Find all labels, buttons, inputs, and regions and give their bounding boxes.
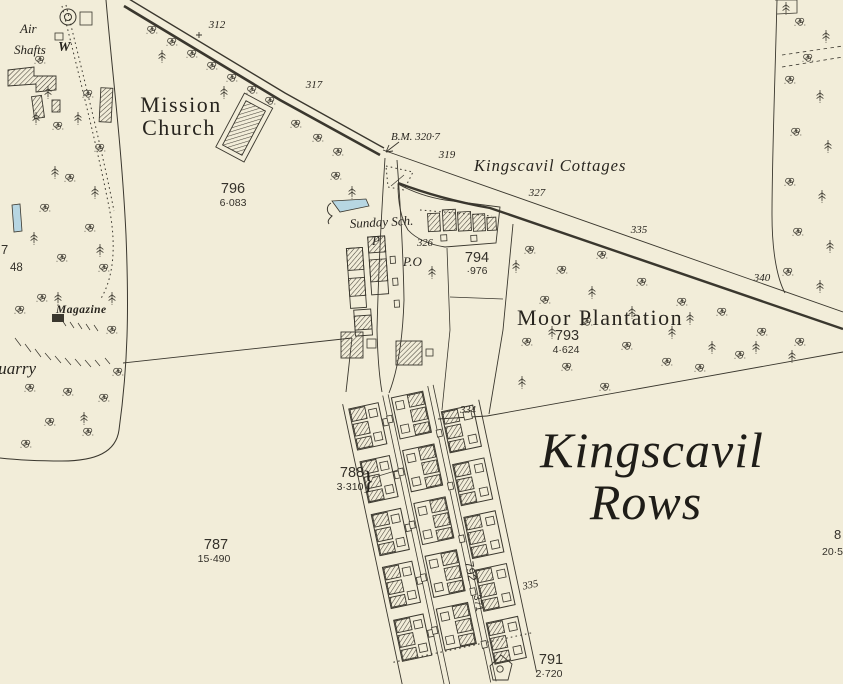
label-parcel-796: 796 — [221, 181, 245, 197]
label-elev-334: 334 — [459, 405, 477, 416]
label-church: Church — [142, 115, 216, 140]
label-edge-parcel-7: 7 — [1, 242, 8, 257]
label-acreage-793: 4·624 — [553, 344, 580, 356]
lane-privy — [387, 415, 393, 423]
terrace-yard-outbuilding — [429, 559, 438, 568]
terrace-houses-hatched — [372, 512, 389, 527]
terrace-yard-outbuilding — [380, 461, 389, 470]
terrace-houses-hatched — [444, 566, 461, 581]
row-block-upper-2 — [396, 341, 422, 365]
label-elev-327: 327 — [528, 187, 546, 199]
terrace-yard-outbuilding — [402, 567, 411, 576]
label-kingscavil-rows-2: Rows — [589, 474, 702, 530]
terrace-yard-outbuilding — [395, 400, 404, 409]
terrace-yard-outbuilding — [434, 582, 443, 591]
terrace-yard-outbuilding — [385, 485, 394, 494]
shaft-outbuilding-2 — [55, 33, 63, 40]
terrace-houses-hatched — [457, 477, 474, 492]
label-kingscavil-rows-1: Kingscavil — [539, 422, 764, 478]
lane-privy — [409, 521, 415, 529]
label-elev-335: 335 — [630, 224, 648, 236]
terrace-west-2-hatched — [354, 315, 372, 330]
label-edge-acreage-20: 20·5 — [822, 546, 843, 558]
terrace-yard-outbuilding — [418, 643, 427, 652]
privy — [393, 278, 398, 285]
lane-privy — [447, 482, 453, 490]
shaft-outbuilding — [80, 12, 92, 25]
terrace-yard-outbuilding — [479, 487, 488, 496]
terrace-houses-hatched — [350, 407, 367, 422]
terrace-houses-hatched — [398, 633, 415, 648]
terrace-houses-hatched — [491, 635, 508, 650]
privy — [394, 300, 399, 307]
label-acreage-796: 6·083 — [220, 197, 247, 209]
label-benchmark: B.M. 320·7 — [391, 131, 440, 143]
terrace-west-hatched — [346, 247, 363, 270]
terrace-houses-hatched — [468, 530, 485, 545]
terrace-west-hatched — [348, 277, 365, 296]
terrace-yard-outbuilding — [407, 590, 416, 599]
cottage — [457, 211, 471, 231]
label-edge-acreage-48: 48 — [10, 262, 23, 274]
terrace-yard-outbuilding — [423, 530, 432, 539]
label-parcel-794: 794 — [465, 250, 489, 266]
terrace-east-hatched — [369, 259, 387, 282]
label-well-w: W — [58, 40, 72, 55]
privy — [390, 256, 395, 263]
cottage — [473, 214, 486, 232]
label-air-shafts-2: Shafts — [14, 42, 46, 57]
label-parcel-787: 787 — [204, 537, 228, 553]
cottage — [442, 209, 456, 231]
terrace-houses-hatched — [443, 409, 460, 424]
terrace-yard-outbuilding — [368, 408, 377, 417]
label-elev-312: 312 — [208, 19, 226, 31]
terrace-houses-hatched — [441, 551, 458, 566]
lane-privy — [420, 574, 426, 582]
terrace-houses-hatched — [455, 618, 472, 633]
terrace-houses-hatched — [353, 421, 370, 436]
label-acreage-794: ·976 — [466, 265, 487, 277]
terrace-houses-hatched — [430, 498, 447, 513]
small-reservoir — [12, 204, 22, 232]
label-elev-340: 340 — [753, 272, 771, 284]
label-acreage-788: 3·310 — [337, 481, 364, 493]
terrace-yard-outbuilding — [400, 424, 409, 433]
terrace-yard-outbuilding — [412, 477, 421, 486]
lane-privy — [481, 641, 487, 649]
terrace-yard-outbuilding — [413, 620, 422, 629]
terrace-houses-hatched — [407, 392, 424, 407]
label-pump-p: P — [371, 233, 380, 248]
row-outbuilding — [426, 349, 433, 356]
terrace-houses-hatched — [376, 527, 393, 542]
terrace-yard-outbuilding — [373, 432, 382, 441]
terrace-houses-hatched — [395, 618, 412, 633]
label-moor-plantation: Moor Plantation — [517, 305, 683, 330]
terrace-houses-hatched — [452, 604, 469, 619]
terrace-yard-outbuilding — [485, 516, 494, 525]
cottage-outbuilding — [441, 235, 447, 241]
label-elev-326: 326 — [416, 238, 434, 249]
terrace-yard-outbuilding — [391, 514, 400, 523]
terrace-yard-outbuilding — [508, 622, 517, 631]
terrace-yard-outbuilding — [468, 434, 477, 443]
label-parcel-788: 788 — [340, 465, 364, 481]
terrace-houses-hatched — [418, 445, 435, 460]
terrace-yard-outbuilding — [502, 593, 511, 602]
row-outbuilding — [367, 339, 376, 348]
terrace-houses-hatched — [446, 424, 463, 439]
terrace-yard-outbuilding — [474, 463, 483, 472]
lane-privy — [459, 535, 465, 543]
label-brace-788: } — [362, 466, 374, 495]
cottage-outbuilding — [471, 235, 477, 241]
label-edge-parcel-8: 8 — [834, 527, 841, 542]
cottage — [428, 213, 441, 232]
label-air-shafts-1: Air — [19, 21, 38, 36]
label-parcel-793: 793 — [555, 328, 579, 344]
works-building-3 — [52, 100, 60, 112]
cottage — [487, 217, 497, 230]
terrace-yard-outbuilding — [407, 453, 416, 462]
label-acreage-791: 2·720 — [536, 668, 563, 680]
label-elev-317: 317 — [305, 79, 323, 91]
label-kingscavil-cottages: Kingscavil Cottages — [473, 156, 626, 175]
works-building-4 — [99, 88, 113, 123]
terrace-yard-outbuilding — [490, 540, 499, 549]
label-mission: Mission — [140, 92, 221, 117]
terrace-yard-outbuilding — [513, 645, 522, 654]
terrace-yard-outbuilding — [497, 569, 506, 578]
terrace-houses-hatched — [454, 462, 471, 477]
map-canvas: Air Shafts W Mission Church 312 317 B.M.… — [0, 0, 843, 684]
terrace-yard-outbuilding — [418, 506, 427, 515]
terrace-houses-hatched — [433, 513, 450, 528]
lane-privy — [436, 429, 442, 437]
terrace-houses-hatched — [410, 407, 427, 422]
row-block-upper — [341, 332, 363, 358]
terrace-houses-hatched — [422, 460, 439, 475]
terrace-houses-hatched — [387, 580, 404, 595]
terrace-houses-hatched — [384, 565, 401, 580]
label-post-office: P.O — [402, 254, 423, 269]
terrace-houses-hatched — [465, 515, 482, 530]
label-quarry: Quarry — [0, 359, 37, 378]
label-parcel-791: 791 — [539, 652, 563, 668]
label-elev-319: 319 — [438, 149, 456, 161]
terrace-yard-outbuilding — [440, 612, 449, 621]
terrace-houses-hatched — [487, 621, 504, 636]
terrace-yard-outbuilding — [396, 537, 405, 546]
lane-privy — [432, 626, 438, 634]
label-acreage-787: 15·490 — [198, 553, 231, 565]
label-magazine: Magazine — [55, 304, 107, 316]
lane-privy — [398, 468, 404, 476]
terrace-yard-outbuilding — [445, 635, 454, 644]
